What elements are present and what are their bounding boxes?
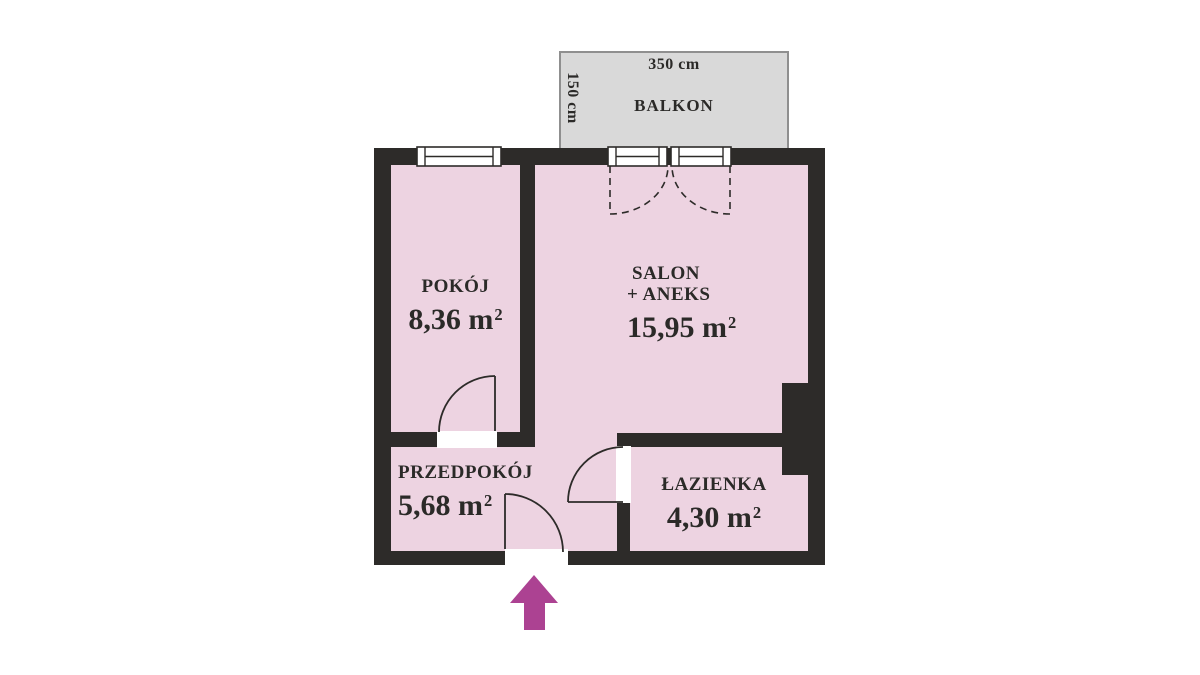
room-name: ŁAZIENKA — [655, 474, 773, 495]
lazienka-top-wall — [617, 433, 782, 447]
room-area: 15,95 m2 — [627, 307, 736, 344]
room-area: 4,30 m2 — [655, 497, 773, 534]
room-name: SALON — [627, 263, 736, 284]
room-label-pokoj: POKÓJ 8,36 m2 — [391, 276, 520, 336]
balcony-label: BALKON — [560, 96, 788, 116]
room-name: PRZEDPOKÓJ — [398, 462, 533, 483]
window-icon — [417, 147, 501, 166]
room-label-przedpokoj: PRZEDPOKÓJ 5,68 m2 — [398, 462, 533, 522]
balcony-width-dimension: 350 cm — [560, 56, 788, 74]
room-label-lazienka: ŁAZIENKA 4,30 m2 — [655, 474, 773, 534]
pokoj-door-opening — [437, 431, 497, 448]
room-area: 5,68 m2 — [398, 485, 533, 522]
room-name: POKÓJ — [391, 276, 520, 297]
lazienka-door-opening — [616, 446, 631, 503]
entrance-door-opening — [505, 549, 568, 567]
entrance-arrow-icon — [510, 575, 558, 630]
room-area: 8,36 m2 — [391, 299, 520, 336]
wall-shaft — [782, 383, 825, 475]
room-name-line2: + ANEKS — [627, 284, 736, 305]
room-label-salon: SALON + ANEKS 15,95 m2 — [627, 263, 736, 344]
